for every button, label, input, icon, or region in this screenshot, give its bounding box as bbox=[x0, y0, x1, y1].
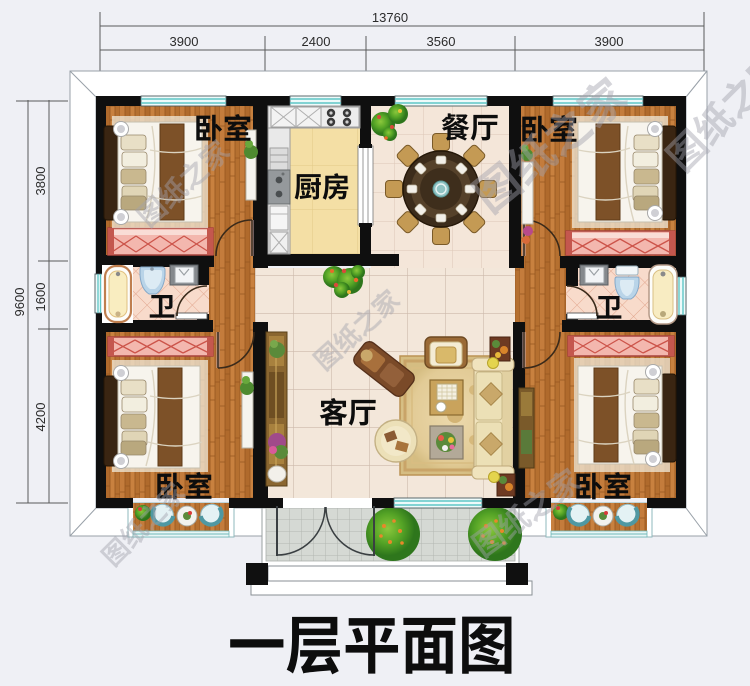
svg-text:1600: 1600 bbox=[33, 283, 48, 312]
svg-text:9600: 9600 bbox=[12, 288, 27, 317]
svg-text:3900: 3900 bbox=[595, 34, 624, 49]
svg-text:3560: 3560 bbox=[427, 34, 456, 49]
svg-text:13760: 13760 bbox=[372, 10, 408, 25]
svg-text:3800: 3800 bbox=[33, 167, 48, 196]
svg-text:3900: 3900 bbox=[170, 34, 199, 49]
svg-text:4200: 4200 bbox=[33, 403, 48, 432]
svg-text:2400: 2400 bbox=[302, 34, 331, 49]
